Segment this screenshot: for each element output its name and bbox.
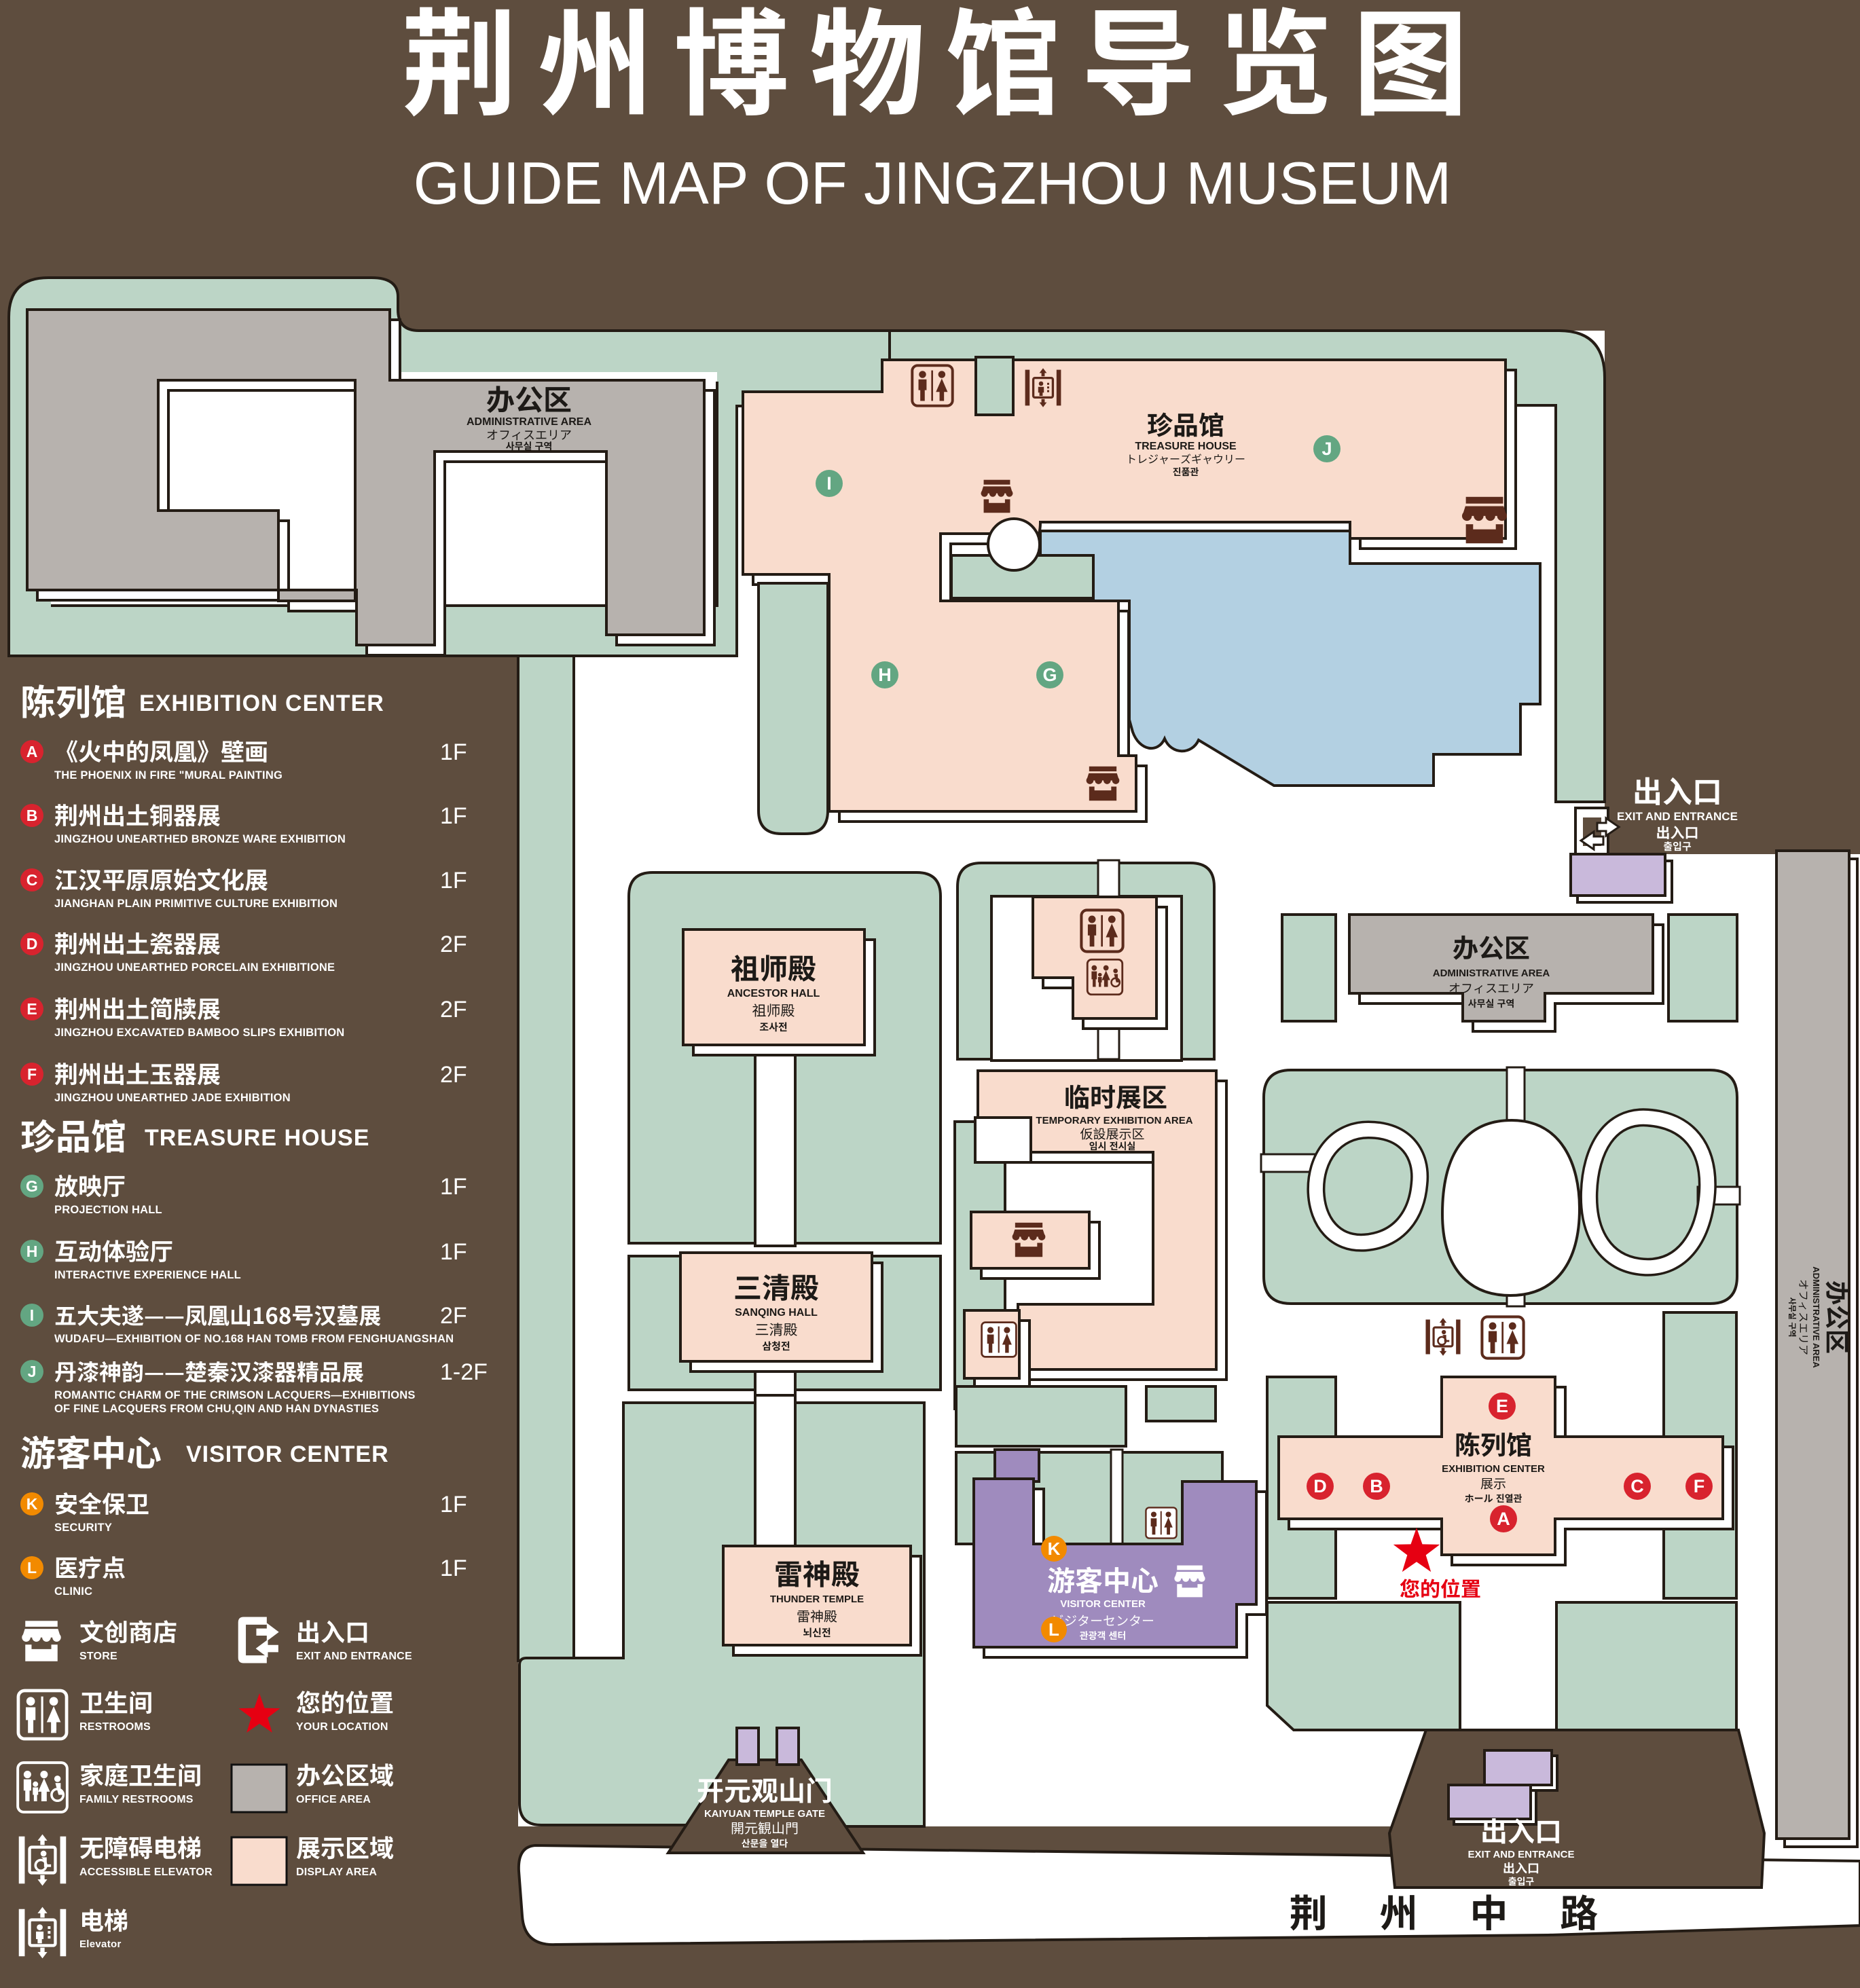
svg-text:KAIYUAN TEMPLE GATE: KAIYUAN TEMPLE GATE bbox=[704, 1808, 825, 1820]
svg-text:WUDAFU—EXHIBITION OF NO.168 HA: WUDAFU—EXHIBITION OF NO.168 HAN TOMB FRO… bbox=[54, 1333, 454, 1345]
svg-text:1F: 1F bbox=[440, 1492, 467, 1517]
svg-text:ACCESSIBLE ELEVATOR: ACCESSIBLE ELEVATOR bbox=[79, 1866, 213, 1878]
svg-text:GUIDE MAP OF JINGZHOU MUSEUM: GUIDE MAP OF JINGZHOU MUSEUM bbox=[414, 149, 1452, 217]
svg-text:FAMILY RESTROOMS: FAMILY RESTROOMS bbox=[79, 1794, 194, 1805]
svg-text:G: G bbox=[1042, 665, 1057, 685]
svg-text:ADMINISTRATIVE AREA: ADMINISTRATIVE AREA bbox=[1811, 1266, 1821, 1368]
svg-text:C: C bbox=[1630, 1476, 1644, 1496]
svg-text:A: A bbox=[1497, 1509, 1510, 1529]
svg-text:F: F bbox=[1694, 1476, 1705, 1496]
svg-text:D: D bbox=[26, 935, 38, 953]
svg-text:L: L bbox=[27, 1559, 37, 1577]
svg-text:Elevator: Elevator bbox=[79, 1938, 122, 1950]
svg-text:1F: 1F bbox=[440, 1174, 467, 1200]
svg-text:INTERACTIVE EXPERIENCE HALL: INTERACTIVE EXPERIENCE HALL bbox=[54, 1269, 241, 1281]
svg-text:OFFICE AREA: OFFICE AREA bbox=[296, 1794, 371, 1805]
svg-text:EXHIBITION CENTER: EXHIBITION CENTER bbox=[139, 691, 384, 716]
svg-text:1F: 1F bbox=[440, 739, 467, 765]
svg-text:OF FINE LACQUERS FROM CHU,QIN: OF FINE LACQUERS FROM CHU,QIN AND HAN DY… bbox=[54, 1403, 379, 1415]
svg-text:A: A bbox=[26, 743, 38, 760]
svg-text:F: F bbox=[27, 1065, 37, 1083]
svg-text:EXHIBITION CENTER: EXHIBITION CENTER bbox=[1442, 1463, 1545, 1475]
svg-text:JINGZHOU UNEARTHED BRONZE WARE: JINGZHOU UNEARTHED BRONZE WARE EXHIBITIO… bbox=[54, 833, 346, 845]
svg-text:TREASURE HOUSE: TREASURE HOUSE bbox=[145, 1125, 369, 1151]
svg-text:EXIT AND ENTRANCE: EXIT AND ENTRANCE bbox=[1617, 810, 1738, 823]
svg-text:JINGZHOU EXCAVATED BAMBOO SLIP: JINGZHOU EXCAVATED BAMBOO SLIPS EXHIBITI… bbox=[54, 1027, 344, 1039]
svg-text:VISITOR CENTER: VISITOR CENTER bbox=[186, 1441, 389, 1467]
svg-text:I: I bbox=[826, 473, 832, 494]
svg-text:EXIT AND ENTRANCE: EXIT AND ENTRANCE bbox=[296, 1651, 412, 1662]
svg-text:2F: 2F bbox=[440, 1062, 467, 1088]
svg-text:RESTROOMS: RESTROOMS bbox=[79, 1721, 151, 1733]
svg-text:1F: 1F bbox=[440, 803, 467, 829]
svg-text:THE PHOENIX IN FIRE "MURAL PAI: THE PHOENIX IN FIRE "MURAL PAINTING bbox=[54, 769, 282, 781]
svg-text:H: H bbox=[878, 665, 892, 685]
svg-text:SECURITY: SECURITY bbox=[54, 1522, 112, 1534]
svg-text:J: J bbox=[1321, 439, 1332, 459]
svg-text:ADMINISTRATIVE AREA: ADMINISTRATIVE AREA bbox=[467, 416, 591, 428]
svg-text:H: H bbox=[26, 1242, 38, 1260]
svg-text:1F: 1F bbox=[440, 1239, 467, 1265]
svg-text:JIANGHAN PLAIN PRIMITIVE CULTU: JIANGHAN PLAIN PRIMITIVE CULTURE EXHIBIT… bbox=[54, 898, 338, 910]
svg-text:1F: 1F bbox=[440, 1556, 467, 1581]
svg-text:E: E bbox=[1496, 1396, 1508, 1416]
svg-text:C: C bbox=[26, 871, 38, 889]
svg-text:I: I bbox=[30, 1306, 34, 1324]
svg-text:B: B bbox=[1370, 1476, 1383, 1496]
svg-text:2F: 2F bbox=[440, 997, 467, 1023]
svg-text:THUNDER TEMPLE: THUNDER TEMPLE bbox=[770, 1594, 864, 1605]
svg-text:VISITOR CENTER: VISITOR CENTER bbox=[1060, 1598, 1146, 1610]
svg-text:DISPLAY AREA: DISPLAY AREA bbox=[296, 1866, 377, 1878]
svg-text:D: D bbox=[1313, 1476, 1327, 1496]
svg-text:2F: 2F bbox=[440, 932, 467, 957]
svg-text:ANCESTOR HALL: ANCESTOR HALL bbox=[727, 988, 820, 999]
svg-text:JINGZHOU UNEARTHED PORCELAIN E: JINGZHOU UNEARTHED PORCELAIN EXHIBITIONE bbox=[54, 961, 335, 974]
svg-text:1F: 1F bbox=[440, 868, 467, 894]
svg-text:K: K bbox=[26, 1495, 38, 1513]
svg-text:1-2F: 1-2F bbox=[440, 1359, 488, 1385]
svg-text:E: E bbox=[26, 1000, 37, 1018]
svg-text:2F: 2F bbox=[440, 1303, 467, 1329]
svg-text:TREASURE HOUSE: TREASURE HOUSE bbox=[1135, 441, 1237, 452]
svg-text:J: J bbox=[28, 1363, 37, 1380]
svg-text:ROMANTIC CHARM OF THE CRIMSON: ROMANTIC CHARM OF THE CRIMSON LACQUERS—E… bbox=[54, 1389, 416, 1401]
svg-text:PROJECTION HALL: PROJECTION HALL bbox=[54, 1204, 162, 1216]
svg-text:CLINIC: CLINIC bbox=[54, 1585, 92, 1598]
svg-text:ADMINISTRATIVE AREA: ADMINISTRATIVE AREA bbox=[1433, 968, 1550, 979]
svg-text:K: K bbox=[1048, 1539, 1061, 1559]
svg-text:L: L bbox=[1048, 1619, 1059, 1640]
svg-text:STORE: STORE bbox=[79, 1651, 117, 1662]
svg-text:G: G bbox=[26, 1177, 38, 1195]
svg-text:EXIT AND ENTRANCE: EXIT AND ENTRANCE bbox=[1468, 1849, 1575, 1860]
svg-text:JINGZHOU UNEARTHED JADE EXHIBI: JINGZHOU UNEARTHED JADE EXHIBITION bbox=[54, 1092, 291, 1104]
svg-text:TEMPORARY EXHIBITION AREA: TEMPORARY EXHIBITION AREA bbox=[1036, 1115, 1192, 1126]
svg-text:YOUR LOCATION: YOUR LOCATION bbox=[296, 1721, 388, 1733]
svg-text:B: B bbox=[26, 807, 38, 824]
svg-text:SANQING HALL: SANQING HALL bbox=[735, 1307, 818, 1319]
